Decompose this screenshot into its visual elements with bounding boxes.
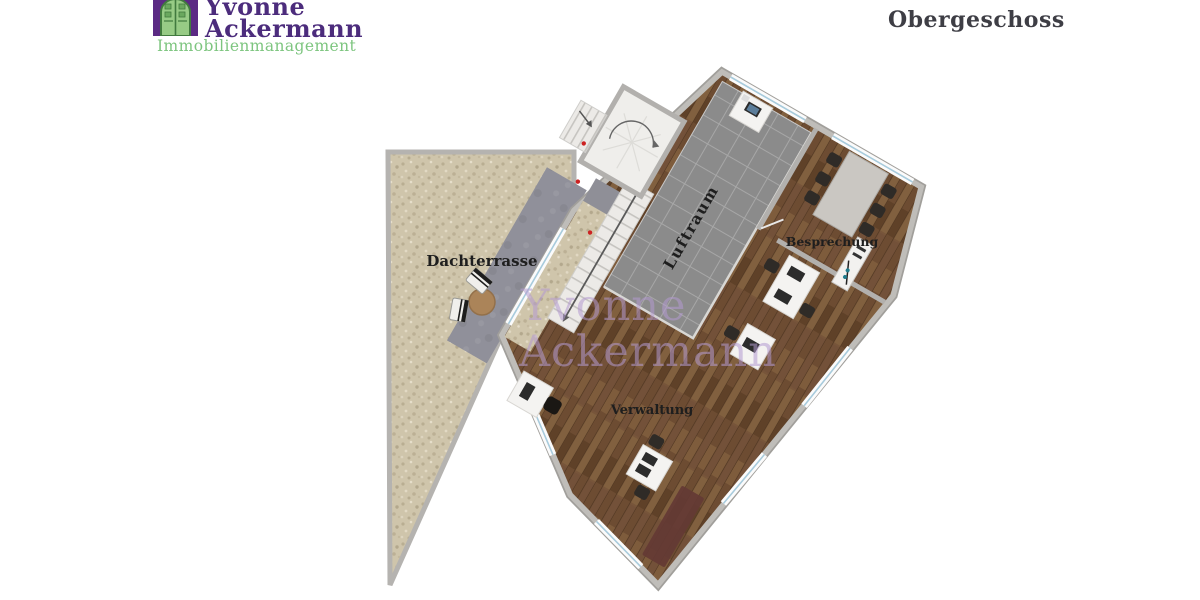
terrace-chair: [449, 298, 469, 322]
room-label-dachterrasse: Dachterrasse: [426, 252, 537, 270]
floorplan-page: Luftraum Dachterrasse Besprechung Verwal…: [0, 0, 1200, 600]
building-door-icon: [153, 0, 198, 36]
logo-subtitle: Immobilienmanagement: [157, 37, 356, 55]
room-label-besprechung: Besprechung: [786, 234, 879, 249]
floorplan-canvas: Luftraum Dachterrasse Besprechung Verwal…: [0, 0, 1200, 600]
page-title: Obergeschoss: [888, 7, 1065, 33]
room-label-verwaltung: Verwaltung: [610, 403, 694, 418]
